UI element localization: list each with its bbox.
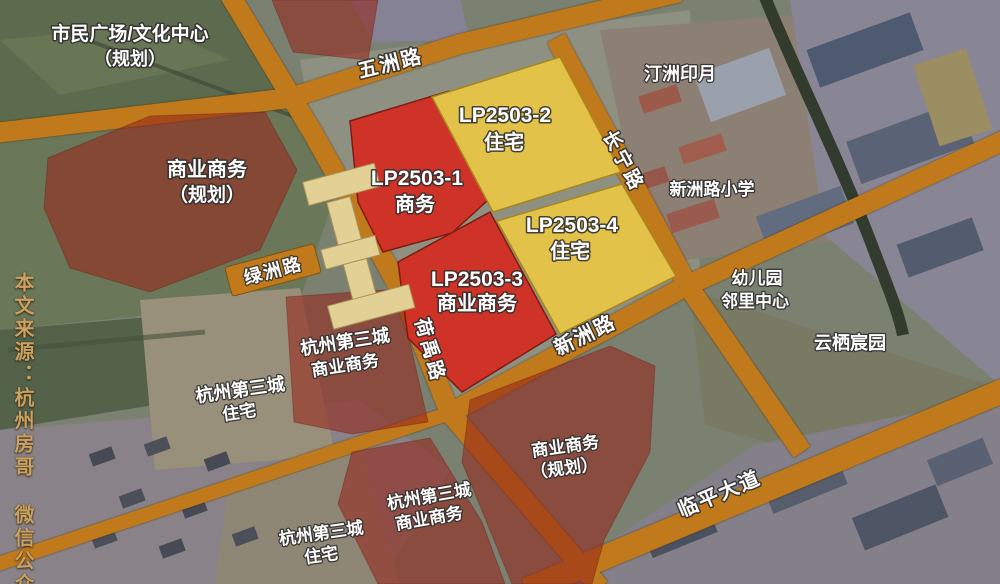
label-tingzhou: 汀洲印月 xyxy=(644,64,716,84)
satellite-land-parcel-map: 市民广场/文化中心 （规划） 五洲路 长宁路 荷禹路 新洲路 临平大道 绿洲路 … xyxy=(0,0,1000,584)
label-civic-center: 市民广场/文化中心 xyxy=(51,22,208,45)
parcel-label-lp1-id: LP2503-1 xyxy=(371,167,464,190)
label-kindergarten: 幼儿园 xyxy=(732,268,783,288)
parcel-label-lp4-use: 住宅 xyxy=(550,239,590,263)
parcel-label-lp4-id: LP2503-4 xyxy=(526,214,619,237)
label-biz-nw-note: （规划） xyxy=(169,183,245,206)
label-yunqi: 云栖宸园 xyxy=(814,332,886,353)
parcel-label-lp2-use: 住宅 xyxy=(484,130,524,154)
parcel-label-lp3-use: 商业商务 xyxy=(437,291,518,315)
parcel-label-lp2-id: LP2503-2 xyxy=(459,104,551,127)
parcel-label-lp3-id: LP2503-3 xyxy=(431,268,523,291)
label-civic-center-note: （规划） xyxy=(94,48,166,69)
watermark-source: 本文来源：杭州房哥 微信公众号 xyxy=(8,272,37,582)
label-school: 新洲路小学 xyxy=(670,179,755,199)
label-biz-nw: 商业商务 xyxy=(167,157,248,181)
zone-red-top xyxy=(272,0,378,60)
parcel-label-lp1-use: 商务 xyxy=(395,192,436,216)
label-neighborhood-center: 邻里中心 xyxy=(721,291,789,311)
map-canvas: 市民广场/文化中心 （规划） 五洲路 长宁路 荷禹路 新洲路 临平大道 绿洲路 … xyxy=(0,0,1000,584)
